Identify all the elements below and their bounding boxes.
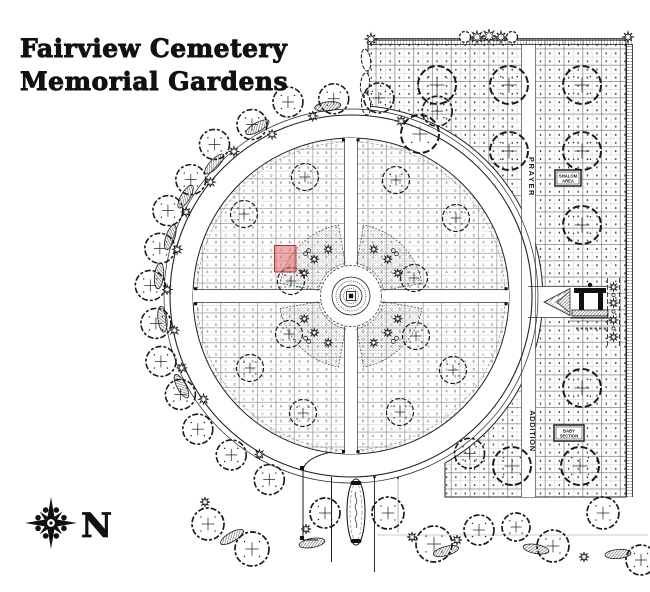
cemetery-map-page: ABCD Fairview Cemetery Memorial Gardens … <box>0 0 650 592</box>
circular-garden-section <box>193 138 509 454</box>
shrub-star-icon <box>324 339 332 347</box>
tree-symbol <box>153 196 183 226</box>
shrub-star-icon <box>365 33 377 45</box>
mulch-bed <box>202 152 227 177</box>
entrance-median-island <box>347 479 365 545</box>
shrub-star-icon <box>495 31 507 43</box>
mulch-bed <box>314 100 341 112</box>
shrub-icon <box>507 32 518 43</box>
shrub-star-icon <box>609 283 618 292</box>
tree-symbol <box>216 440 246 470</box>
shrub-star-icon <box>300 315 308 323</box>
shrub-star-icon <box>172 244 182 254</box>
lower-sign-line2: SECTION <box>560 434 579 439</box>
compass-rose-icon <box>25 497 77 549</box>
tree-symbol <box>626 545 650 575</box>
tree-symbol <box>146 346 176 376</box>
tree-symbol <box>502 513 530 541</box>
shrub-star-icon <box>394 269 402 277</box>
tree-symbol <box>587 497 619 529</box>
map-title-line1: Fairview Cemetery <box>20 34 288 63</box>
tree-symbol <box>310 498 340 528</box>
shrub-star-icon <box>370 339 378 347</box>
tree-symbol <box>401 115 439 153</box>
tree-symbol <box>254 465 284 495</box>
tree-symbol <box>192 508 224 540</box>
shrub-star-icon <box>199 394 209 404</box>
upper-sign-line2: AREA <box>562 179 574 184</box>
highlighted-plot[interactable] <box>275 246 297 273</box>
tree-symbol <box>235 532 269 566</box>
shrub-star-icon <box>609 316 618 325</box>
shrub-star-icon <box>200 497 210 507</box>
lower-sign: BABY SECTION <box>554 425 584 441</box>
shrub-star-icon <box>407 532 417 542</box>
tree-symbol <box>464 515 494 545</box>
upper-sign: SHALOM AREA <box>555 170 581 186</box>
shrub-star-icon <box>609 333 618 342</box>
center-monument <box>320 265 382 327</box>
shrub-star-icon <box>177 363 187 373</box>
shrub-star-icon <box>301 524 311 534</box>
shrub-star-icon <box>452 535 462 545</box>
tree-symbol <box>416 526 452 562</box>
addition-section-label: ADDITION <box>528 410 537 452</box>
compass-north-label: N <box>81 506 112 546</box>
shrub-star-icon <box>162 285 172 295</box>
shrub-star-icon <box>255 450 265 460</box>
tree-symbol <box>372 497 404 529</box>
shrub-star-icon <box>623 32 634 43</box>
prayer-section-label: PRAYER <box>527 157 536 197</box>
shrub-star-icon <box>310 255 318 263</box>
map-title-line2: Memorial Gardens <box>20 67 288 96</box>
tree-symbol <box>183 414 213 444</box>
shrub-star-icon <box>609 299 618 308</box>
shrub-star-icon <box>229 147 239 157</box>
shrub-star-icon <box>471 31 484 44</box>
mulch-bed <box>156 306 168 333</box>
shrub-icon <box>460 32 471 43</box>
shrub-star-icon <box>394 315 402 323</box>
mulch-bed <box>522 542 549 555</box>
shrub-star-icon <box>370 245 378 253</box>
shrub-star-icon <box>310 329 318 337</box>
shrub-star-icon <box>384 255 392 263</box>
shrub-star-icon <box>181 207 191 217</box>
shrub-star-icon <box>396 116 406 126</box>
shrub-star-icon <box>267 129 277 139</box>
shrub-star-icon <box>324 245 332 253</box>
tree-symbol <box>199 129 229 159</box>
shrub-star-icon <box>308 111 318 121</box>
shrub-star-icon <box>169 325 179 335</box>
shrub-star-icon <box>384 329 392 337</box>
shrub-star-icon <box>579 552 589 562</box>
cemetery-plot-map: ABCD Fairview Cemetery Memorial Gardens … <box>0 0 650 592</box>
shrub-star-icon <box>205 177 215 187</box>
right-hedge-border <box>627 44 633 497</box>
shrub-star-icon <box>482 29 496 43</box>
